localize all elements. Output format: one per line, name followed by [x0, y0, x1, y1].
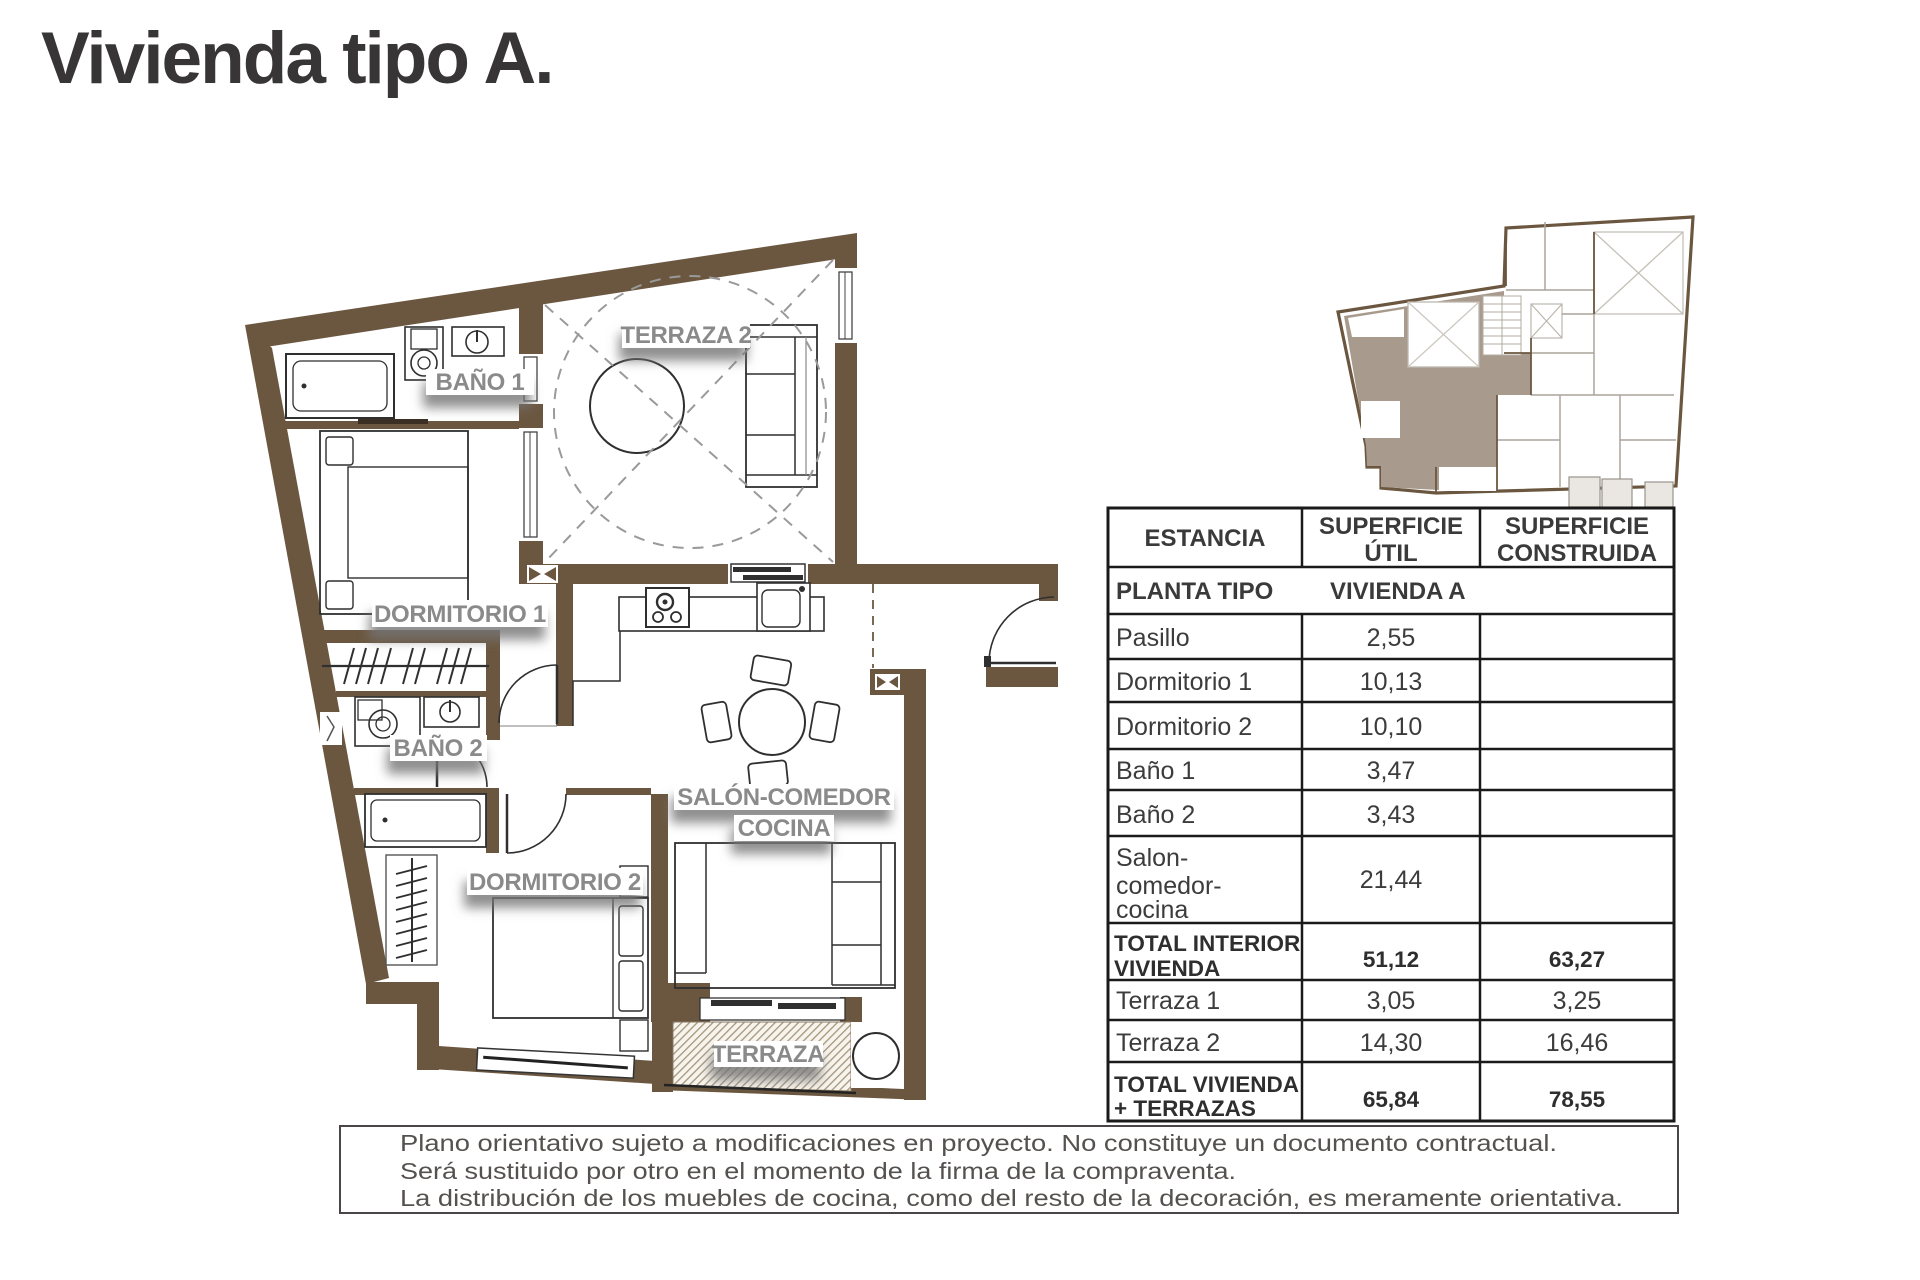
- svg-text:DORMITORIO 2: DORMITORIO 2: [469, 869, 641, 896]
- svg-text:16,46: 16,46: [1546, 1029, 1609, 1057]
- svg-text:TOTAL INTERIOR: TOTAL INTERIOR: [1114, 931, 1300, 956]
- svg-text:3,47: 3,47: [1367, 757, 1416, 785]
- svg-text:3,25: 3,25: [1553, 987, 1602, 1015]
- svg-text:La distribución de los muebles: La distribución de los muebles de cocina…: [400, 1185, 1623, 1211]
- svg-text:PLANTA TIPO: PLANTA TIPO: [1116, 578, 1273, 605]
- svg-text:3,43: 3,43: [1367, 801, 1416, 829]
- svg-text:SUPERFICIE: SUPERFICIE: [1505, 513, 1649, 540]
- svg-text:Terraza 2: Terraza 2: [1116, 1029, 1220, 1057]
- svg-text:Dormitorio 2: Dormitorio 2: [1116, 713, 1252, 741]
- svg-text:Baño 2: Baño 2: [1116, 801, 1195, 829]
- svg-text:VIVIENDA A: VIVIENDA A: [1330, 578, 1466, 605]
- svg-text:Será sustituido por otro en el: Será sustituido por otro en el momento d…: [400, 1158, 1236, 1184]
- svg-text:2,55: 2,55: [1367, 624, 1416, 652]
- svg-text:SUPERFICIE: SUPERFICIE: [1319, 513, 1463, 540]
- svg-text:78,55: 78,55: [1549, 1087, 1605, 1112]
- svg-text:10,13: 10,13: [1360, 668, 1423, 696]
- svg-text:BAÑO 1: BAÑO 1: [436, 368, 525, 396]
- svg-text:21,44: 21,44: [1360, 866, 1423, 894]
- svg-text:51,12: 51,12: [1363, 947, 1419, 972]
- svg-text:TERRAZA 2: TERRAZA 2: [620, 322, 751, 349]
- svg-text:cocina: cocina: [1116, 896, 1188, 924]
- svg-text:TOTAL VIVIENDA: TOTAL VIVIENDA: [1114, 1072, 1299, 1097]
- svg-text:Dormitorio 1: Dormitorio 1: [1116, 668, 1252, 696]
- svg-text:10,10: 10,10: [1360, 713, 1423, 741]
- svg-text:ÚTIL: ÚTIL: [1364, 539, 1417, 567]
- svg-text:Pasillo: Pasillo: [1116, 624, 1190, 652]
- svg-text:+ TERRAZAS: + TERRAZAS: [1114, 1096, 1256, 1121]
- svg-text:Vivienda tipo A.: Vivienda tipo A.: [41, 18, 553, 99]
- svg-text:Salon-: Salon-: [1116, 844, 1188, 872]
- svg-text:CONSTRUIDA: CONSTRUIDA: [1497, 540, 1657, 567]
- svg-text:SALÓN-COMEDOR: SALÓN-COMEDOR: [677, 783, 890, 811]
- svg-text:Plano orientativo sujeto a mod: Plano orientativo sujeto a modificacione…: [400, 1130, 1557, 1156]
- svg-text:Baño 1: Baño 1: [1116, 757, 1195, 785]
- svg-text:DORMITORIO 1: DORMITORIO 1: [374, 601, 546, 628]
- svg-text:VIVIENDA: VIVIENDA: [1114, 956, 1220, 981]
- svg-text:ESTANCIA: ESTANCIA: [1145, 525, 1266, 552]
- svg-text:COCINA: COCINA: [738, 815, 831, 842]
- svg-text:TERRAZA: TERRAZA: [712, 1041, 825, 1068]
- svg-text:BAÑO 2: BAÑO 2: [394, 734, 483, 762]
- svg-text:65,84: 65,84: [1363, 1087, 1420, 1112]
- svg-text:14,30: 14,30: [1360, 1029, 1423, 1057]
- svg-text:3,05: 3,05: [1367, 987, 1416, 1015]
- svg-text:Terraza 1: Terraza 1: [1116, 987, 1220, 1015]
- svg-text:63,27: 63,27: [1549, 947, 1605, 972]
